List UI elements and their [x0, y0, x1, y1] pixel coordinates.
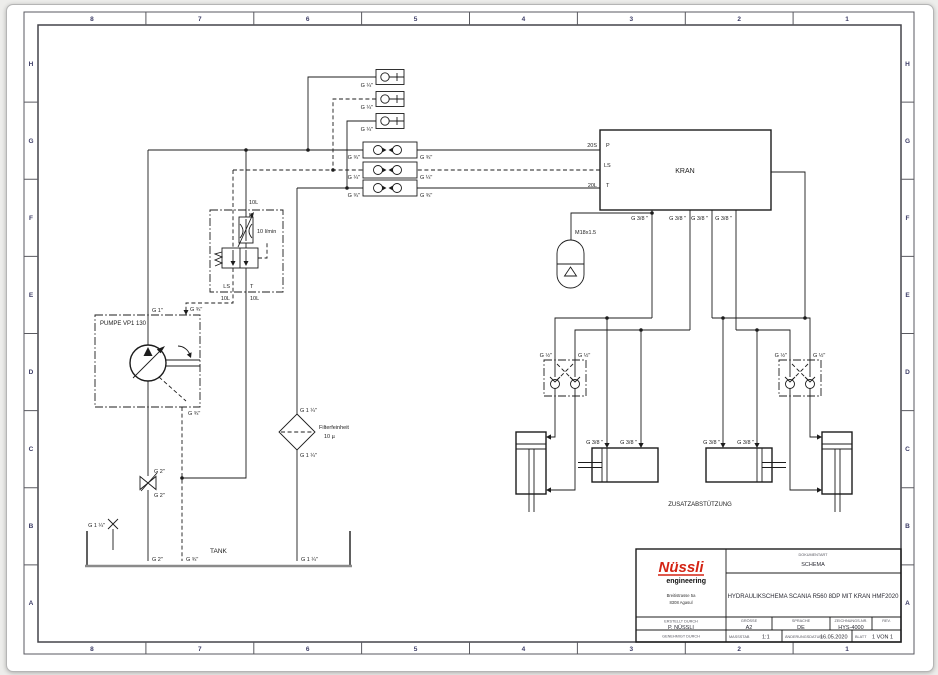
coupling-size: G ¾": [420, 155, 432, 161]
grid-label: 5: [414, 646, 418, 653]
accumulator: M18x1.5: [557, 213, 652, 288]
language-label: SPRACHE: [792, 619, 811, 623]
cylinder-port-size: G 3/8 ": [737, 440, 754, 446]
grid-label: D: [905, 369, 910, 376]
valve-port-ls: LS: [223, 284, 230, 290]
cylinder-port-size: G 3/8 ": [620, 440, 637, 446]
pressure-valve-icon: [215, 242, 267, 268]
drawing-title: HYDRAULIKSCHEMA SCANIA R560 8DP MIT KRAN…: [728, 594, 899, 600]
filter-port-top: G 1 ¼": [300, 408, 317, 414]
quick-couplings: G ¾" G ¾" G ¼" G ¼" G ¾" G ¾": [348, 142, 433, 199]
test-point-size: G ¼": [361, 127, 373, 133]
pilot-check-block-right: G ½" G ½": [775, 352, 826, 493]
grid-label: 8: [90, 16, 94, 23]
approved-by-label: GENEHMIGT DURCH: [662, 635, 700, 639]
coupling-icon: [363, 142, 417, 158]
test-point-icon: [376, 70, 404, 85]
grid-label: H: [29, 61, 34, 68]
doc-type-label: DOKUMENTART: [799, 553, 829, 557]
grid-label: D: [29, 369, 34, 376]
coupling-icon: [363, 180, 417, 196]
line-size-20l: 20L: [588, 183, 597, 189]
coupling-size: G ¾": [420, 193, 432, 199]
test-point-size: G ¼": [361, 105, 373, 111]
pump-rotation-arrow-icon: [178, 346, 190, 355]
kran-bottom-port-label: G 3/8 ": [715, 216, 732, 222]
kran-port-t-label: T: [606, 183, 610, 189]
valve-block: 10L P 10 l/min LS T 10L 10L: [182, 150, 283, 478]
check-port-size: G ½": [540, 352, 552, 359]
grid-label: 5: [414, 16, 418, 23]
vertical-cylinder-icon: [516, 432, 546, 512]
logo-subtext: engineering: [666, 578, 706, 585]
grid-label: H: [905, 61, 910, 68]
grid-label: 1: [845, 16, 849, 23]
tank-drain-port: G ¾": [186, 557, 198, 563]
doc-type-value: SCHEMA: [801, 562, 825, 568]
grid-label: 2: [737, 646, 741, 653]
created-by-label: ERSTELLT DURCH: [664, 620, 698, 624]
pump-drain-port: G ¾": [188, 411, 200, 417]
check-port-size: G ½": [578, 352, 590, 359]
grid-label: A: [29, 600, 34, 607]
grid-label: 8: [90, 646, 94, 653]
suction-line: G 2" G 2": [140, 381, 182, 561]
scale-value: 1:1: [762, 635, 770, 641]
horizontal-cylinder-icon: [706, 448, 786, 482]
title-block: Nüssli engineering Breitistrasse 5a 8308…: [636, 549, 901, 642]
grid-label: G: [905, 138, 910, 145]
flow-rate-label: 10 l/min: [257, 229, 276, 235]
filter-port-bottom: G 1 ¼": [300, 453, 317, 459]
size-value: A2: [746, 625, 753, 631]
accumulator-thread: M18x1.5: [575, 230, 596, 236]
cylinder-port-size: G 3/8 ": [586, 440, 603, 446]
grid-label: 6: [306, 646, 310, 653]
sheet-value: 1 VON 1: [872, 635, 893, 641]
right-outrigger-cylinders: G 3/8 " G 3/8 ": [703, 432, 852, 512]
filter-spec: 10 µ: [324, 434, 336, 440]
ball-valve-icon: [140, 473, 157, 491]
tank-label: TANK: [210, 548, 228, 555]
flow-control-valve-icon: [238, 212, 254, 247]
return-filter: G 1 ¼" G 1 ¼" Filterfeinheit 10 µ: [279, 408, 349, 561]
grid-label: C: [29, 446, 34, 453]
grid-label: B: [29, 523, 34, 530]
kran-port-ls-label: LS: [604, 163, 611, 169]
check-port-size: G ½": [775, 352, 787, 359]
kran-block: KRAN P LS T 20S 20L G 3/8 " G 3/8 " G 3/…: [587, 130, 805, 330]
junction-dots: [180, 148, 807, 480]
pump-name: PUMPE VP1 130: [100, 321, 147, 327]
company-address: Breitistrasse 5a: [667, 593, 697, 598]
valve-line-t: 10L: [250, 296, 259, 302]
coupling-size: G ¼": [348, 175, 360, 181]
kran-port-p-label: P: [606, 143, 610, 149]
valve-port-t: T: [250, 284, 254, 290]
scale-label: MASSSTAB: [729, 635, 750, 639]
grid-label: 4: [522, 16, 526, 23]
kran-bottom-port-label: G 3/8 ": [691, 216, 708, 222]
grid-label: 4: [522, 646, 526, 653]
hydraulic-schematic: 8 7 6 5 4 3 2 1 8 7 6 5 4 3 2 1 H G F E …: [0, 0, 938, 675]
sheet-label: BLATT: [855, 635, 867, 639]
pilot-check-block-left: G ½" G ½": [540, 352, 591, 493]
grid-label: 2: [737, 16, 741, 23]
pump-unit: PUMPE VP1 130 G 1" G ¾" G ¾": [95, 307, 202, 417]
kran-label: KRAN: [675, 168, 694, 175]
kran-bottom-port-label: G 3/8 ": [669, 216, 686, 222]
change-date-label: ÄNDERUNGSDATUM: [785, 635, 822, 639]
tank-spare-port: G 1 ¼": [88, 523, 105, 529]
plugged-port-icon: [108, 519, 118, 550]
ball-valve-size-top: G 2": [154, 469, 165, 475]
left-outrigger-cylinders: G 3/8 " G 3/8 ": [516, 432, 658, 512]
grid-label: E: [905, 292, 910, 299]
tank-return-port: G 1 ¼": [301, 557, 318, 563]
check-port-size: G ½": [813, 352, 825, 359]
coupling-icon: [363, 162, 417, 178]
coupling-size: G ¾": [348, 193, 360, 199]
outrigger-caption: ZUSATZABSTÜTZUNG: [668, 501, 732, 508]
coupling-size: G ¾": [348, 155, 360, 161]
outrigger-lines: [555, 318, 810, 448]
horizontal-cylinder-icon: [578, 448, 658, 482]
filter-spec: Filterfeinheit: [319, 425, 349, 431]
change-date-value: 16.05.2020: [820, 635, 848, 641]
drawing-no-value: HYS-4000: [838, 625, 863, 631]
pump-ls-port: G ¾": [190, 307, 202, 313]
grid-label: A: [905, 600, 910, 607]
rev-label: REV.: [882, 619, 891, 623]
coupling-size: G ¼": [420, 175, 432, 181]
language-value: DE: [797, 625, 805, 631]
vertical-cylinder-icon: [822, 432, 852, 512]
test-point-size: G ¼": [361, 83, 373, 89]
tank-suction-port: G 2": [152, 557, 163, 563]
grid-label: 3: [629, 646, 633, 653]
grid-label: F: [906, 215, 910, 222]
line-size-20s: 20S: [587, 143, 597, 149]
grid-label: 1: [845, 646, 849, 653]
size-label: GRÖSSE: [741, 619, 758, 623]
ball-valve-size-bottom: G 2": [154, 493, 165, 499]
tank: TANK G 1 ¼" G 2" G ¾" G 1 ¼": [85, 519, 352, 566]
grid-label: F: [29, 215, 33, 222]
grid-label: 7: [198, 646, 202, 653]
grid-label: E: [29, 292, 34, 299]
grid-label: G: [28, 138, 33, 145]
drawing-page: 8 7 6 5 4 3 2 1 8 7 6 5 4 3 2 1 H G F E …: [0, 0, 938, 675]
grid-label: B: [905, 523, 910, 530]
grid-label: 7: [198, 16, 202, 23]
pump-pressure-port: G 1": [152, 308, 163, 314]
drawing-no-label: ZEICHNUNGS-NR.: [835, 619, 868, 623]
grid-label: 3: [629, 16, 633, 23]
company-address: 8308 Agasul: [669, 600, 692, 605]
valve-line-ls: 10L: [221, 296, 230, 302]
created-by-value: P. NÜSSLI: [668, 624, 694, 631]
logo-text: Nüssli: [658, 559, 704, 576]
grid-label: C: [905, 446, 910, 453]
cylinder-port-size: G 3/8 ": [703, 440, 720, 446]
kran-bottom-port-label: G 3/8 ": [631, 216, 648, 222]
test-point-icon: [376, 114, 404, 129]
company-logo: Nüssli engineering Breitistrasse 5a 8308…: [658, 559, 706, 605]
valve-block-line-top: 10L: [249, 200, 258, 206]
grid-label: 6: [306, 16, 310, 23]
test-point-icon: [376, 92, 404, 107]
